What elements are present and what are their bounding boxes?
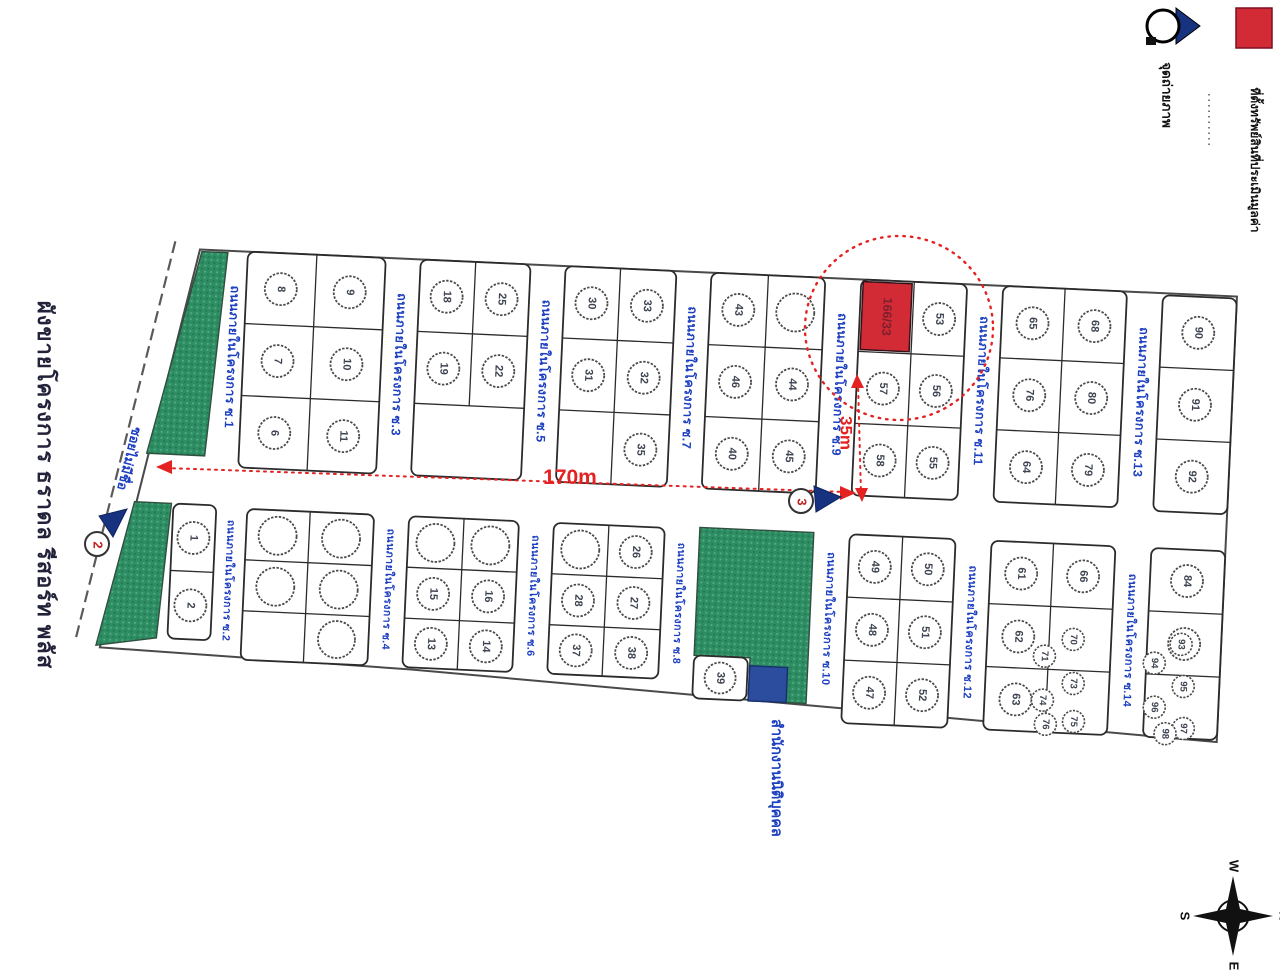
plot-number: 51 xyxy=(919,626,932,639)
plot-number: 70 xyxy=(1067,634,1078,645)
plot-number: 45 xyxy=(783,450,796,463)
plot-number: 75 xyxy=(1068,716,1080,728)
plot-number: 76 xyxy=(1023,389,1036,402)
compass-bottom: E xyxy=(1227,962,1242,971)
plot-number: 49 xyxy=(869,561,882,574)
subject-plot-number: 166/33 xyxy=(879,297,895,336)
plot-number: 53 xyxy=(933,313,946,326)
plot-number: 19 xyxy=(437,362,450,375)
site-plan-page: ซอยไม่มีชื่อ 897106111825192230333132354… xyxy=(0,0,1280,971)
plot-number: 39 xyxy=(714,672,727,685)
page-title: ผังขายโครงการ ธราดล รีสอร์ท พลัส xyxy=(33,301,59,669)
plot-number: 35 xyxy=(634,443,647,456)
plot-number: 63 xyxy=(1009,693,1022,706)
legend-subject-swatch xyxy=(1236,8,1272,48)
map-tilt-group: ซอยไม่มีชื่อ 897106111825192230333132354… xyxy=(73,238,1238,747)
legend-camera-label: จุดถ่ายภาพ xyxy=(1158,62,1174,128)
plot-number: 47 xyxy=(863,686,876,699)
compass-right: N xyxy=(1277,911,1280,920)
plot-number: 57 xyxy=(877,382,890,395)
plot-number: 43 xyxy=(732,304,745,317)
plot-number: 31 xyxy=(582,369,595,382)
plot-number: 10 xyxy=(340,358,353,371)
plot-number: 61 xyxy=(1015,567,1028,580)
plot-number: 50 xyxy=(922,563,935,576)
plot-number: 73 xyxy=(1067,678,1078,689)
compass-top: W xyxy=(1227,860,1242,873)
plot-number: 96 xyxy=(1148,702,1159,713)
plot-number: 71 xyxy=(1039,651,1051,663)
plot-number: 93 xyxy=(1175,639,1186,650)
plot-number: 65 xyxy=(1026,317,1039,330)
plot-number: 76 xyxy=(1040,719,1051,730)
plot-number: 9 xyxy=(344,289,356,296)
compass-left: S xyxy=(1178,912,1193,921)
photo-marker-2: 2 xyxy=(85,509,127,556)
plot-number: 94 xyxy=(1148,658,1160,670)
plot-number: 25 xyxy=(495,293,508,306)
plot-number: 66 xyxy=(1077,570,1090,583)
plot-number: 22 xyxy=(492,365,505,378)
plot-number: 1 xyxy=(187,535,199,542)
camera-nub-icon xyxy=(1146,37,1156,45)
legend: จุดถ่ายภาพ ที่ตั้งทรัพย์สินที่ประเมินมูล… xyxy=(1146,8,1272,233)
plot-number: 84 xyxy=(1181,575,1194,589)
plot-number: 56 xyxy=(930,385,943,398)
plot-number: 14 xyxy=(480,640,493,654)
legend-subject-label: ที่ตั้งทรัพย์สินที่ประเมินมูลค่า xyxy=(1247,87,1265,232)
plot-number: 33 xyxy=(641,299,654,312)
office-plot xyxy=(748,666,788,703)
photo-marker-number: 2 xyxy=(91,541,106,548)
office-label: สำนักงานนิติบุคคล xyxy=(768,719,785,837)
plot-number: 95 xyxy=(1177,681,1189,693)
plot-number: 16 xyxy=(482,590,495,603)
compass-star-icon xyxy=(1193,876,1273,956)
plot-number: 6 xyxy=(268,430,280,437)
plot-number: 27 xyxy=(627,597,640,610)
plot-number: 64 xyxy=(1020,461,1033,475)
plot-number: 13 xyxy=(425,637,438,650)
plot-number: 98 xyxy=(1159,728,1170,739)
plot-number: 18 xyxy=(440,290,453,303)
plot-number: 32 xyxy=(637,371,650,384)
plot-number: 44 xyxy=(786,378,799,392)
plot-number: 28 xyxy=(572,594,585,607)
plot-number: 92 xyxy=(1186,470,1199,483)
plot-number: 55 xyxy=(926,457,939,470)
plot-number: 74 xyxy=(1037,695,1049,707)
plot-number: 8 xyxy=(275,286,287,293)
plot-number: 97 xyxy=(1178,723,1189,734)
plot-number: 91 xyxy=(1189,398,1202,411)
plot-number: 90 xyxy=(1192,326,1205,339)
plot-number: 40 xyxy=(726,447,739,460)
plot-number: 15 xyxy=(427,587,440,600)
plot-number: 30 xyxy=(585,297,598,310)
plot-number: 79 xyxy=(1082,464,1095,477)
plot-number: 68 xyxy=(1088,320,1101,333)
plot-number: 46 xyxy=(729,375,742,388)
dim-170m-label: 170m xyxy=(543,466,597,489)
plot-number: 26 xyxy=(630,546,643,559)
plot-number: 37 xyxy=(570,644,583,657)
plot-number: 62 xyxy=(1012,630,1025,643)
dim-35m-label: 35m xyxy=(837,416,856,450)
plot-number: 2 xyxy=(184,602,196,609)
plot-number: 52 xyxy=(916,689,929,702)
compass-rose: W N E S xyxy=(1178,860,1280,971)
plot-number: 48 xyxy=(866,623,879,636)
camera-point-icon xyxy=(1146,8,1200,45)
photo-marker-number: 3 xyxy=(795,498,810,505)
site-plan-map: ซอยไม่มีชื่อ 897106111825192230333132354… xyxy=(0,0,1280,971)
plot-number: 11 xyxy=(337,430,350,442)
plot-number: 7 xyxy=(271,358,283,365)
plot-number: 80 xyxy=(1085,392,1098,405)
plot-number: 38 xyxy=(625,647,638,660)
plot-number: 58 xyxy=(873,454,886,467)
